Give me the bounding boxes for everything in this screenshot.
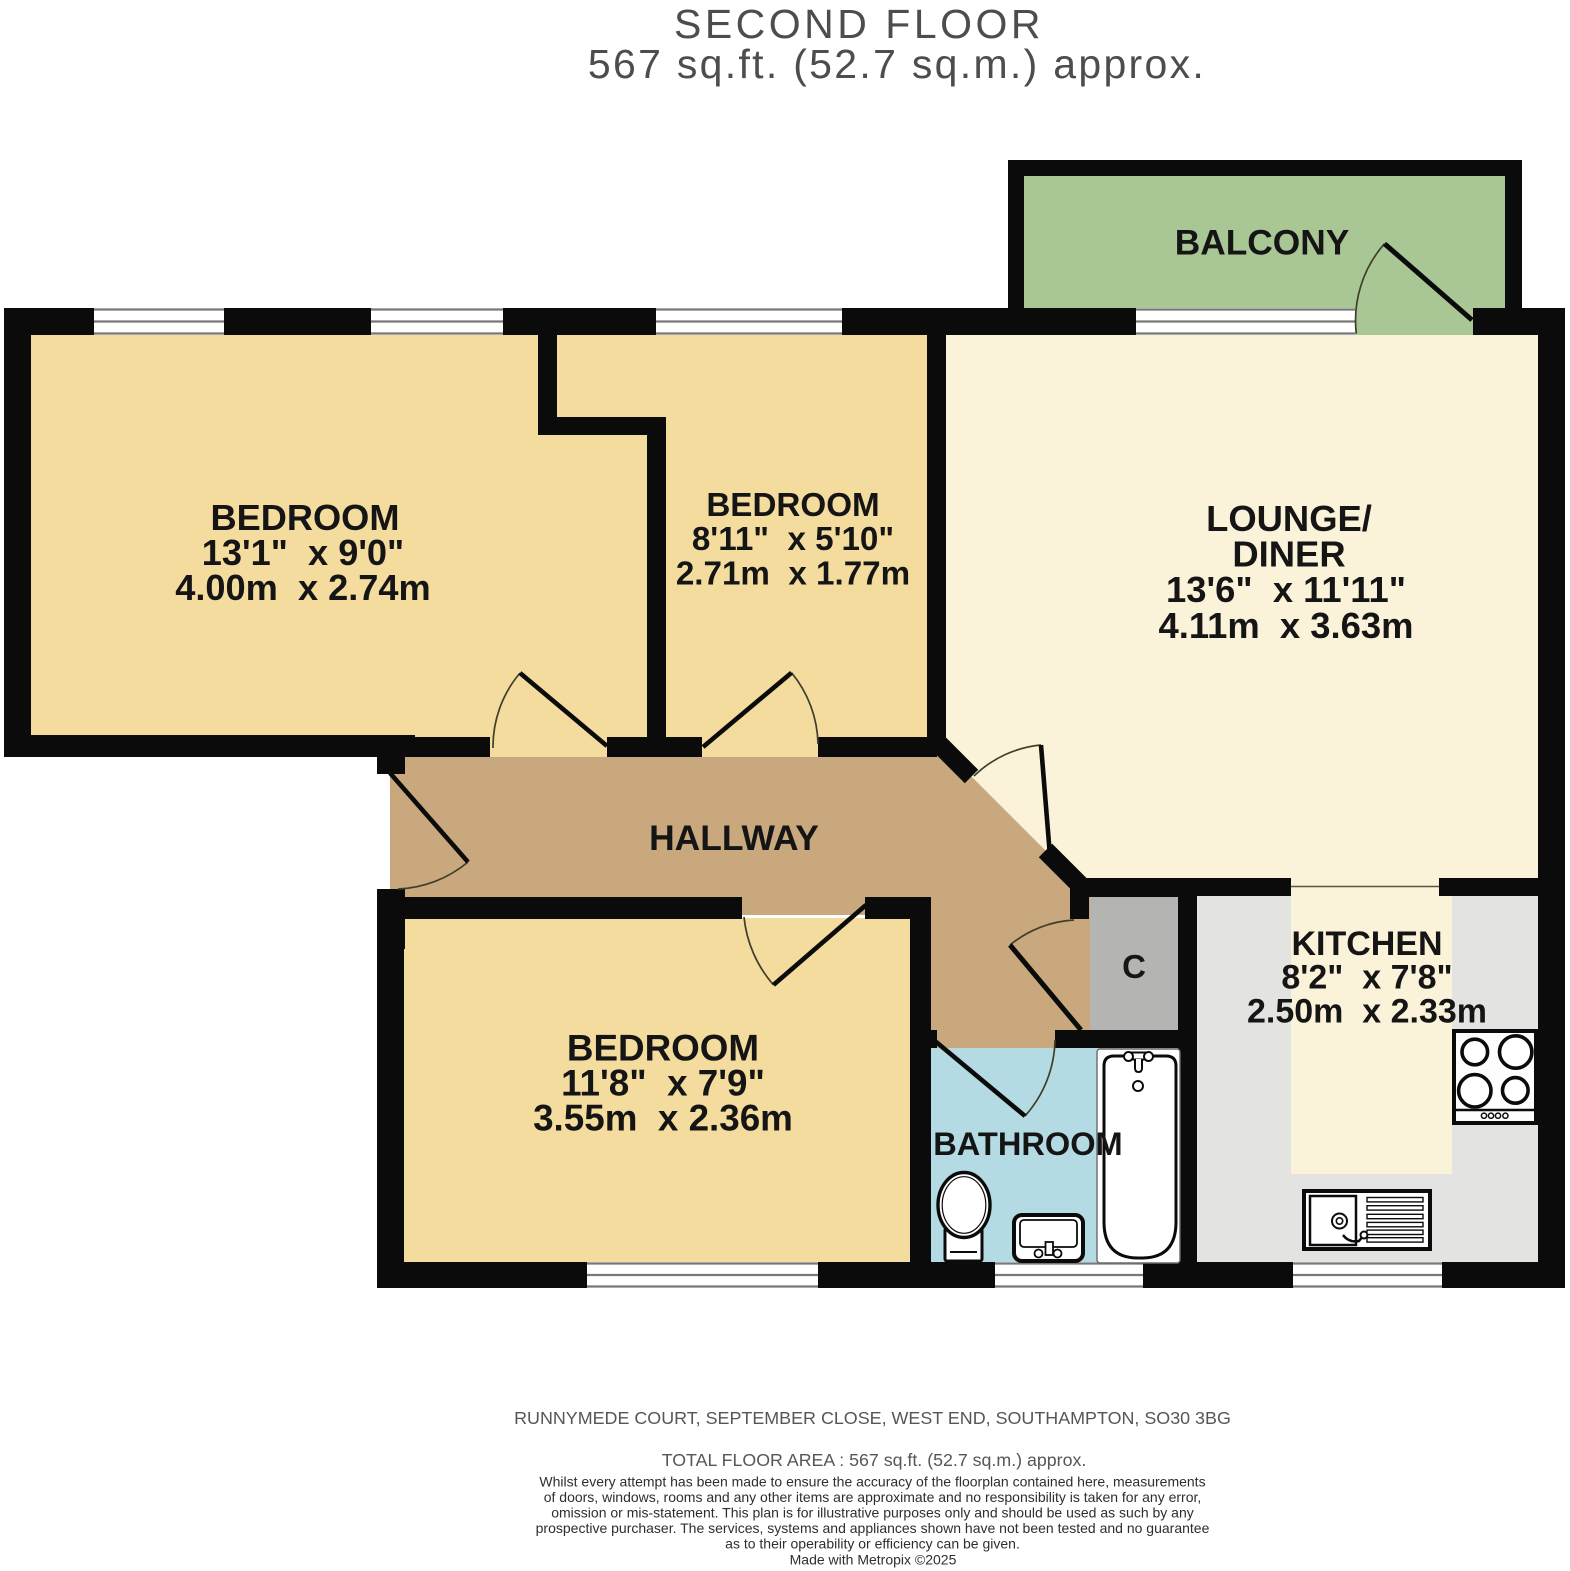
svg-text:567 sq.ft. (52.7 sq.m.) approx: 567 sq.ft. (52.7 sq.m.) approx. — [588, 41, 1206, 87]
svg-text:2.71m x 1.77m: 2.71m x 1.77m — [676, 556, 910, 593]
svg-text:13'6" x 11'11": 13'6" x 11'11" — [1166, 569, 1406, 610]
svg-text:omission or mis-statement. Thi: omission or mis-statement. This plan is … — [551, 1505, 1194, 1521]
svg-text:TOTAL FLOOR AREA : 567 sq.ft.: TOTAL FLOOR AREA : 567 sq.ft. (52.7 sq.m… — [662, 1450, 1087, 1470]
svg-text:C: C — [1122, 948, 1146, 985]
svg-text:BEDROOM: BEDROOM — [706, 487, 879, 524]
svg-text:Whilst every attempt has been: Whilst every attempt has been made to en… — [539, 1474, 1205, 1490]
svg-text:BATHROOM: BATHROOM — [933, 1125, 1122, 1162]
svg-text:as to their operability or eff: as to their operability or efficiency ca… — [725, 1536, 1020, 1552]
svg-text:2.50m x 2.33m: 2.50m x 2.33m — [1247, 993, 1487, 1031]
svg-text:4.11m x 3.63m: 4.11m x 3.63m — [1159, 605, 1414, 646]
svg-text:of doors, windows, rooms and a: of doors, windows, rooms and any other i… — [544, 1489, 1202, 1505]
svg-text:KITCHEN: KITCHEN — [1291, 925, 1442, 963]
svg-text:3.55m x 2.36m: 3.55m x 2.36m — [533, 1098, 793, 1139]
svg-text:Made with Metropix ©2025: Made with Metropix ©2025 — [790, 1552, 957, 1568]
svg-text:BALCONY: BALCONY — [1175, 224, 1350, 263]
svg-text:8'2" x 7'8": 8'2" x 7'8" — [1281, 959, 1452, 997]
svg-text:HALLWAY: HALLWAY — [649, 818, 819, 858]
svg-text:RUNNYMEDE COURT, SEPTEMBER CLO: RUNNYMEDE COURT, SEPTEMBER CLOSE, WEST E… — [514, 1408, 1231, 1428]
svg-text:prospective purchaser. The ser: prospective purchaser. The services, sys… — [536, 1520, 1210, 1536]
svg-text:8'11" x 5'10": 8'11" x 5'10" — [692, 521, 894, 558]
svg-text:4.00m x 2.74m: 4.00m x 2.74m — [175, 567, 431, 608]
